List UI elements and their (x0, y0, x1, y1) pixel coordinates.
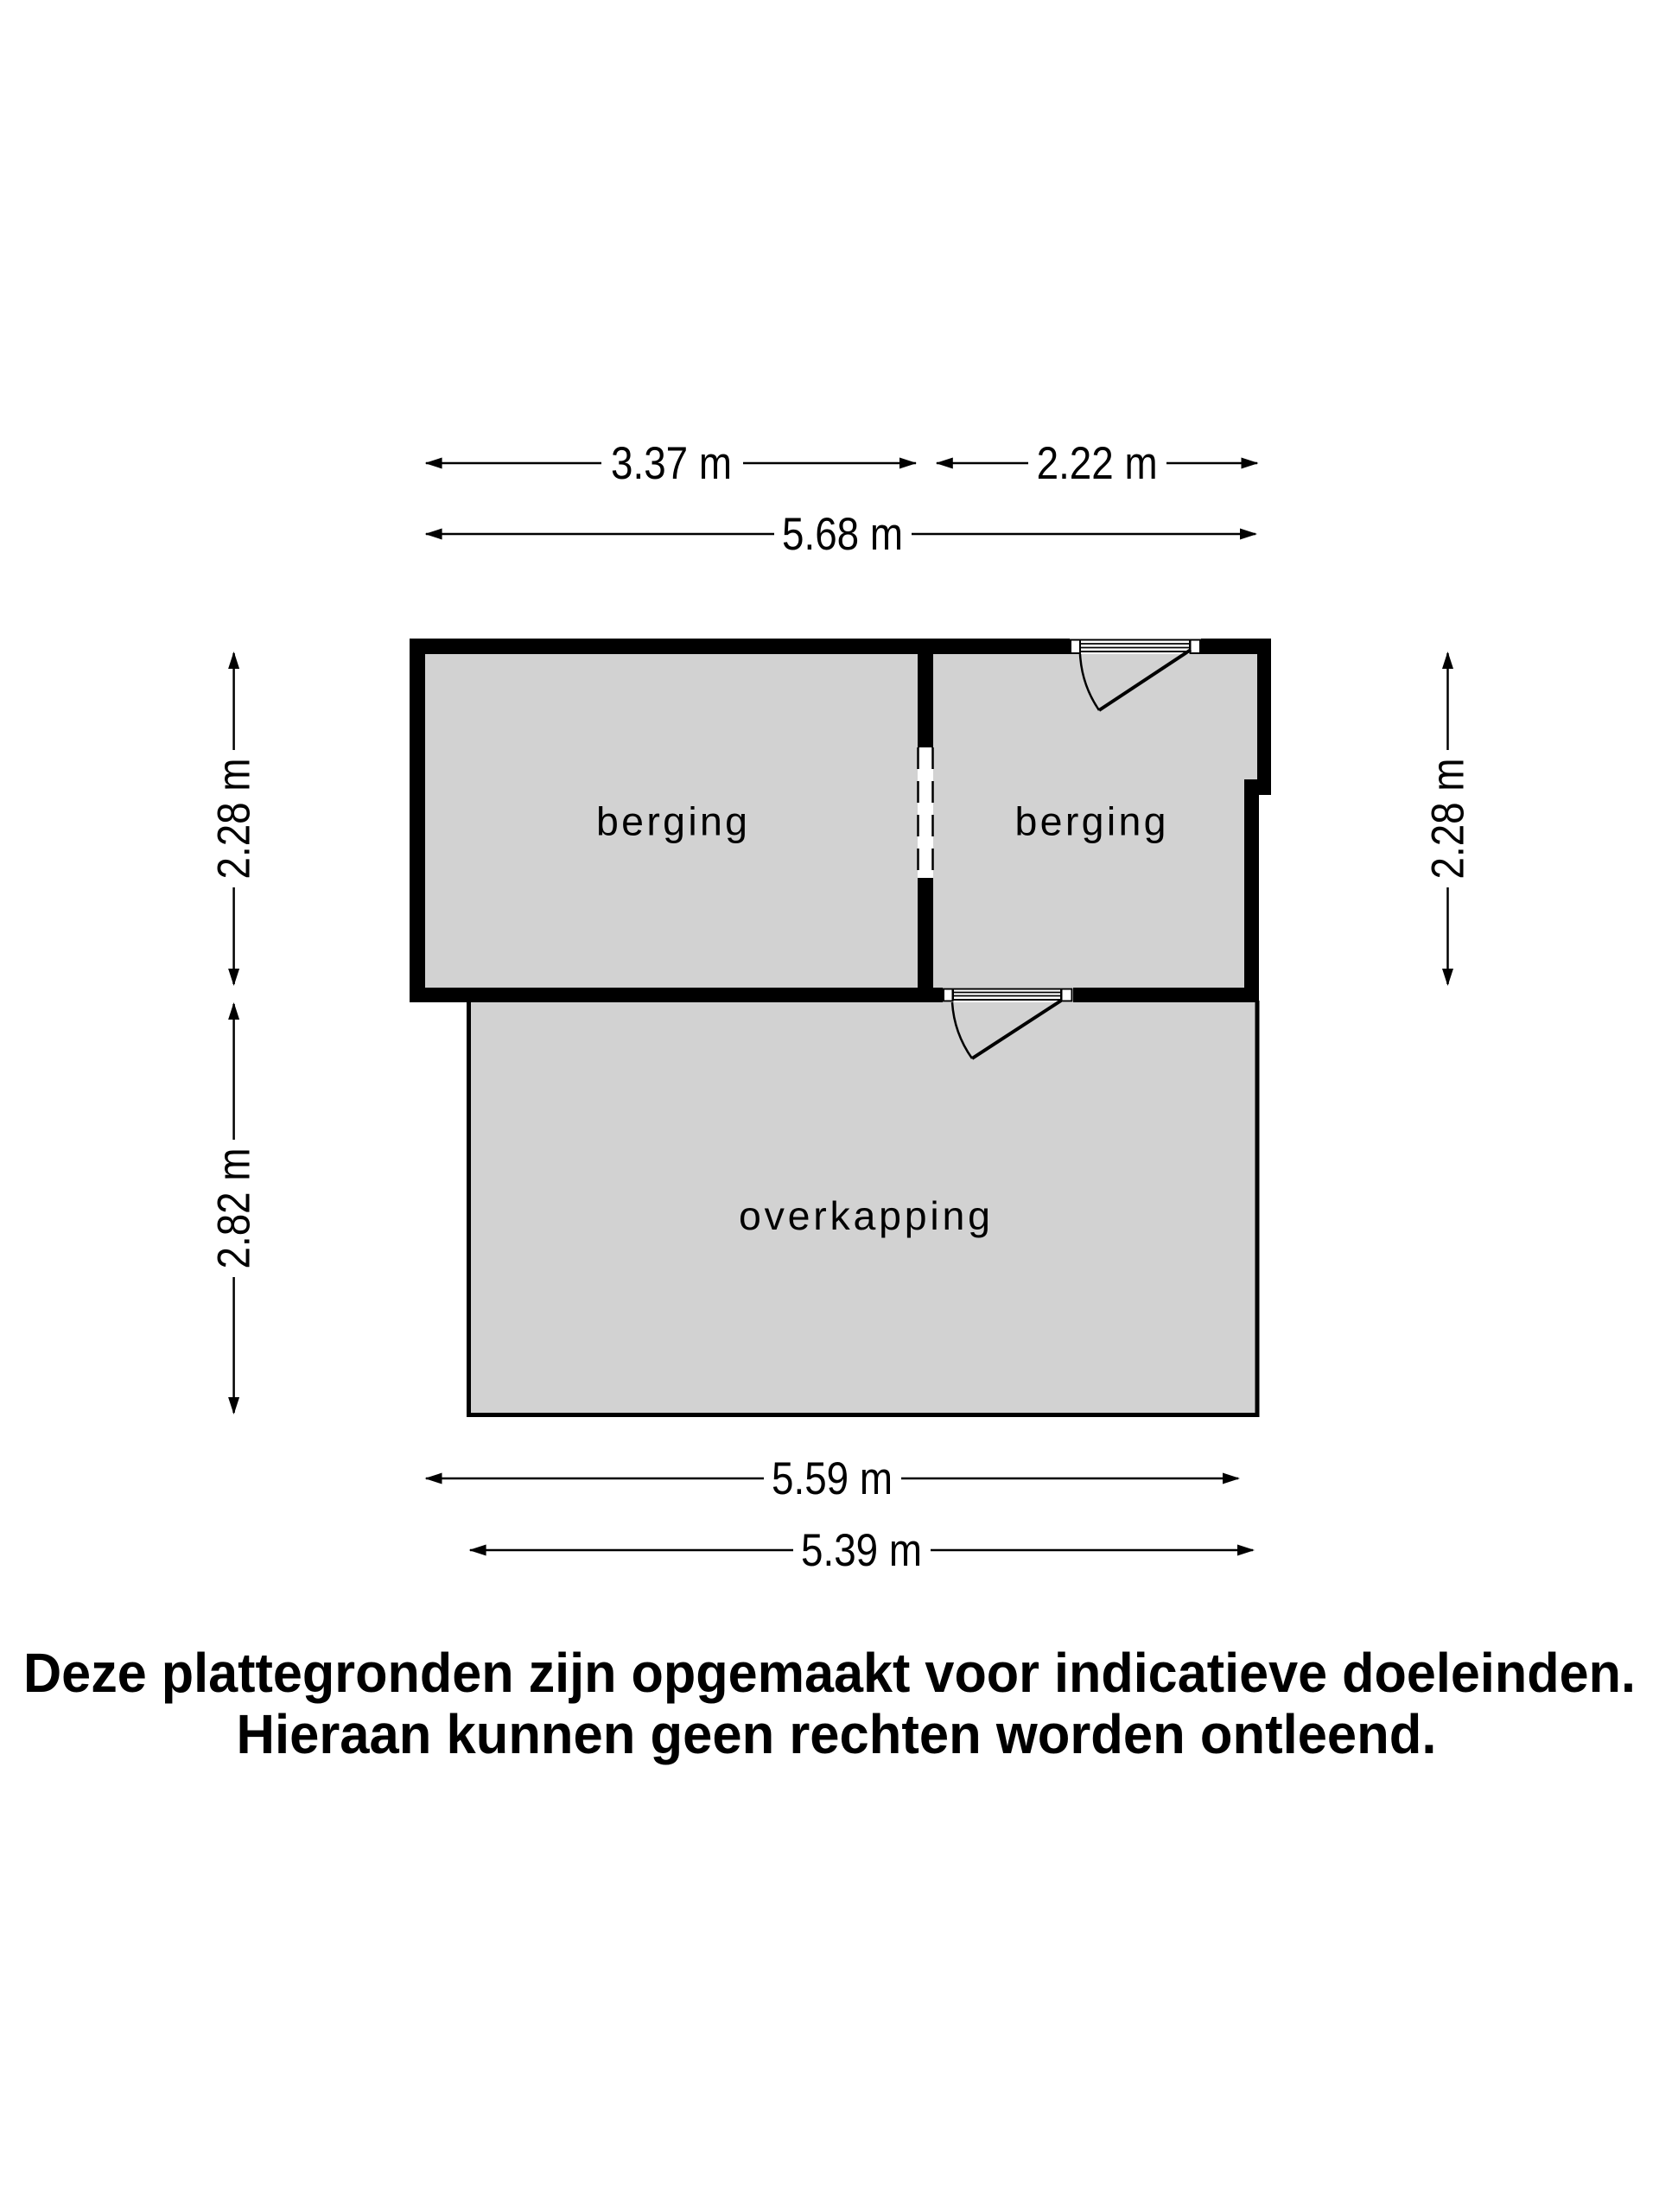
svg-text:2.22 m: 2.22 m (1037, 438, 1158, 489)
svg-text:Deze plattegronden zijn opgema: Deze plattegronden zijn opgemaakt voor i… (23, 1642, 1636, 1704)
svg-text:2.28 m: 2.28 m (1423, 759, 1474, 880)
svg-text:overkapping: overkapping (739, 1193, 990, 1238)
svg-text:Hieraan kunnen geen rechten wo: Hieraan kunnen geen rechten worden ontle… (237, 1703, 1437, 1765)
svg-text:5.59 m: 5.59 m (772, 1453, 893, 1504)
svg-text:3.37 m: 3.37 m (611, 438, 732, 489)
svg-text:5.68 m: 5.68 m (782, 509, 903, 560)
svg-text:5.39 m: 5.39 m (801, 1525, 922, 1576)
svg-text:2.82 m: 2.82 m (209, 1148, 260, 1269)
svg-text:2.28 m: 2.28 m (209, 759, 260, 880)
